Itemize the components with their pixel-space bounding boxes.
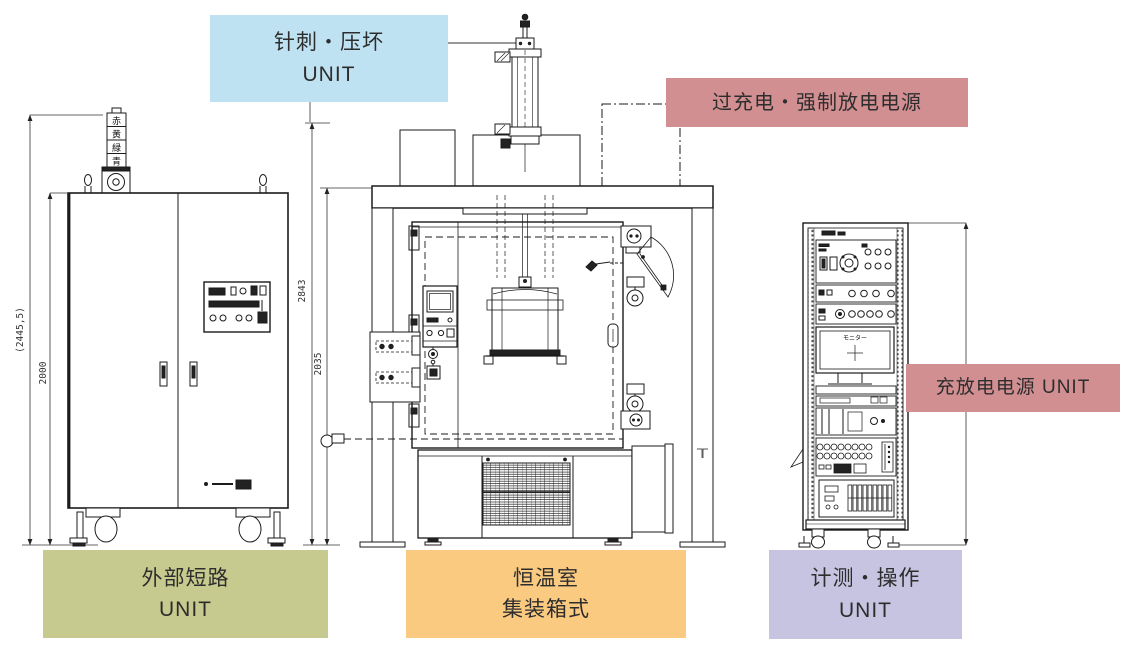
dim-center-total: 2843 <box>297 280 308 303</box>
rack-connector-panel <box>816 438 896 476</box>
caster-wheels <box>70 508 285 546</box>
drive-unit <box>816 396 896 406</box>
power-socket-icon <box>621 411 650 429</box>
dim-left-total: (2445,5) <box>15 307 26 353</box>
nail-crush-device-icon <box>473 14 580 187</box>
controller-unit <box>816 408 896 435</box>
lifting-eyebolt-icon <box>260 175 267 194</box>
signal-tower-icon: 赤 黄 緑 青 <box>107 108 126 167</box>
side-terminal-box <box>370 332 420 402</box>
rack-casters <box>799 529 899 548</box>
rack-logo <box>822 231 835 235</box>
measurement-rack-drawing: モニター <box>791 223 908 548</box>
rack-panel-terminals-2 <box>816 304 896 324</box>
frame-beam <box>372 186 713 208</box>
monitor-label: モニター <box>843 334 867 342</box>
camera-device-icon <box>621 226 651 253</box>
label-text: 过充电・强制放电电源 <box>712 88 922 118</box>
frame-leg-right <box>692 208 713 545</box>
rack-rail <box>897 228 903 525</box>
label-text-line1: 计测・操作 <box>811 563 921 595</box>
label-text: 充放电电源 UNIT <box>936 374 1091 403</box>
rack-monitor: モニター <box>816 327 894 373</box>
lifting-eyebolt-icon <box>85 175 92 194</box>
nameplate <box>236 480 251 489</box>
label-measurement-unit: 计测・操作 UNIT <box>769 550 962 639</box>
label-text-line2: UNIT <box>159 594 212 626</box>
dim-center-body: 2035 <box>313 353 324 376</box>
label-text-line2: UNIT <box>303 59 356 91</box>
label-text-line2: 集装箱式 <box>502 594 590 626</box>
refrigeration-unit <box>418 444 673 545</box>
door-swing-mark <box>791 449 803 467</box>
keyboard-tray <box>816 386 896 394</box>
rack-rail <box>808 228 814 525</box>
rack-panel-terminals-1 <box>816 285 896 302</box>
label-text-line1: 恒温室 <box>513 563 579 595</box>
tower-cell-yellow: 黄 <box>112 129 121 140</box>
label-thermo-room: 恒温室 集装箱式 <box>406 550 686 638</box>
dim-left-body: 2000 <box>38 361 49 384</box>
tower-cell-green: 緑 <box>112 142 121 153</box>
ventilation-grille <box>483 463 570 525</box>
rack-panel-controls <box>816 240 896 283</box>
cabinet-control-panel <box>204 282 270 332</box>
beacon-light-icon <box>102 167 130 193</box>
label-text-line1: 针刺・压坏 <box>274 27 384 59</box>
external-short-cabinet-drawing: 赤 黄 緑 青 <box>68 108 288 546</box>
tower-cell-red: 赤 <box>112 116 121 126</box>
tower-cell-blue: 青 <box>112 156 121 167</box>
diagram-canvas: (2445,5) 2000 2843 2035 赤 黄 緑 青 <box>0 0 1133 659</box>
drain-elbow-icon <box>321 434 344 447</box>
label-overcharge-psu: 过充电・强制放电电源 <box>666 78 968 127</box>
label-text-line1: 外部短路 <box>142 563 230 595</box>
label-text-line2: UNIT <box>839 595 892 627</box>
terminal-block-unit <box>819 480 894 517</box>
label-nail-crush-unit: 针刺・压坏 UNIT <box>210 15 448 102</box>
label-external-short-unit: 外部短路 UNIT <box>43 550 328 638</box>
door-clamp-icon <box>627 277 644 412</box>
label-charge-discharge-psu: 充放电电源 UNIT <box>906 364 1120 412</box>
roof-box <box>400 130 455 187</box>
